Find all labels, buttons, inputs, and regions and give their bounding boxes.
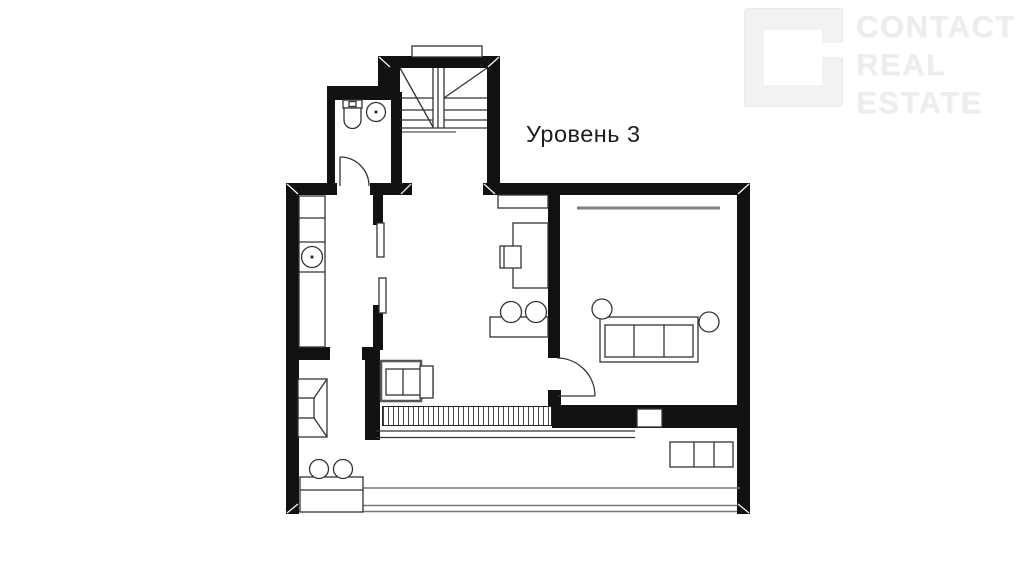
wall-bathroom-top xyxy=(327,86,400,100)
shelf xyxy=(498,195,548,208)
watermark-line-1: CONTACT xyxy=(856,8,1021,46)
armchair-armrest xyxy=(420,366,433,398)
floor-plan-page: Уровень 3 CONTACT REAL ESTATE xyxy=(0,0,1021,577)
terrace-stool xyxy=(310,460,329,479)
contact-logo-hole xyxy=(764,30,822,85)
bathroom xyxy=(340,100,386,186)
wall-mid-vertical xyxy=(365,347,380,440)
wall-bathroom-right xyxy=(391,92,402,195)
bar-stool xyxy=(526,302,547,323)
living-door-arc xyxy=(557,358,595,396)
terrace xyxy=(299,442,740,512)
toilet-button xyxy=(349,102,356,107)
sliding-panel xyxy=(377,223,384,257)
bathroom-door-arc xyxy=(340,157,369,186)
stair-window-niche xyxy=(412,46,482,57)
desk-chair xyxy=(500,246,521,268)
ventilation-niche xyxy=(637,409,662,427)
side-table xyxy=(592,299,612,319)
wall-right-outer xyxy=(737,183,750,514)
living-room xyxy=(557,208,720,427)
side-table xyxy=(699,312,719,332)
sofa-seat xyxy=(605,325,693,357)
wall-living-left xyxy=(548,195,560,358)
watermark-text: CONTACT REAL ESTATE xyxy=(856,8,1021,122)
wall-bathroom-left xyxy=(327,86,335,195)
lower-stairs-hatch xyxy=(382,406,552,426)
sliding-panel xyxy=(379,278,386,313)
wash-basin-drain xyxy=(374,110,377,113)
terrace-table xyxy=(300,477,363,512)
cabinet xyxy=(670,442,733,467)
toilet-bowl xyxy=(344,108,361,129)
fireplace xyxy=(298,379,327,437)
watermark-line-3: ESTATE xyxy=(856,84,1021,122)
plan-level-title: Уровень 3 xyxy=(526,121,641,148)
terrace-stool xyxy=(334,460,353,479)
wall-kitchen-bottom-a xyxy=(286,347,330,360)
contact-logo-channel xyxy=(815,43,843,57)
kitchen-sink-drain xyxy=(310,255,313,258)
watermark-line-2: REAL xyxy=(856,46,1021,84)
bar-stool xyxy=(501,302,522,323)
hall xyxy=(490,195,548,337)
stair-diagonal xyxy=(444,68,487,98)
wall-top-living xyxy=(483,183,750,195)
kitchen xyxy=(299,196,386,347)
wall-partition-upper xyxy=(373,195,383,225)
contact-logo-icon xyxy=(744,8,843,107)
wall-stair-right xyxy=(487,56,500,195)
